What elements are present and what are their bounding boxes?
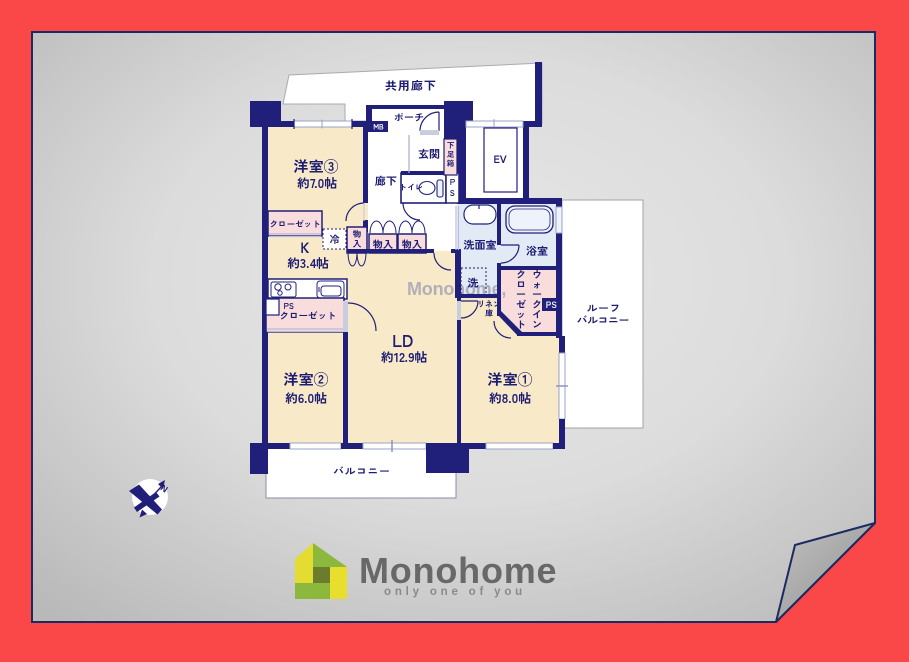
svg-text:S: S: [450, 187, 455, 199]
svg-text:Monohome: Monohome: [359, 550, 557, 591]
svg-text:洋室①: 洋室①: [487, 369, 532, 390]
svg-text:入: 入: [353, 238, 362, 250]
svg-text:バルコニー: バルコニー: [577, 313, 630, 328]
svg-text:廊下: 廊下: [374, 173, 397, 189]
svg-text:物入: 物入: [373, 236, 393, 251]
svg-text:約6.0帖: 約6.0帖: [285, 388, 327, 407]
svg-text:冷: 冷: [330, 231, 340, 246]
svg-text:クローゼット: クローゼット: [269, 218, 320, 230]
svg-text:ト: ト: [516, 316, 526, 331]
svg-text:ポーチ: ポーチ: [394, 109, 424, 124]
svg-text:玄関: 玄関: [418, 146, 440, 162]
svg-text:PS: PS: [284, 300, 295, 312]
svg-text:PS: PS: [546, 298, 557, 311]
svg-text:物入: 物入: [402, 236, 422, 251]
svg-text:浴室: 浴室: [526, 243, 548, 259]
svg-text:バルコニー: バルコニー: [333, 464, 391, 479]
svg-text:EV: EV: [493, 151, 506, 167]
svg-text:洗面室: 洗面室: [463, 237, 497, 253]
svg-text:MB: MB: [373, 122, 384, 133]
svg-text:ン: ン: [532, 316, 542, 331]
svg-text:約7.0帖: 約7.0帖: [297, 173, 338, 192]
svg-text:洗: 洗: [467, 275, 479, 291]
svg-text:約3.4帖: 約3.4帖: [287, 253, 329, 272]
svg-text:共用廊下: 共用廊下: [385, 77, 437, 94]
svg-text:洋室②: 洋室②: [283, 369, 328, 390]
svg-text:トイレ: トイレ: [399, 182, 423, 193]
svg-text:約12.9帖: 約12.9帖: [381, 347, 428, 366]
svg-text:only one of you: only one of you: [384, 586, 526, 598]
svg-text:庫: 庫: [485, 308, 493, 319]
svg-text:箱: 箱: [446, 158, 455, 169]
svg-text:約8.0帖: 約8.0帖: [489, 388, 531, 407]
